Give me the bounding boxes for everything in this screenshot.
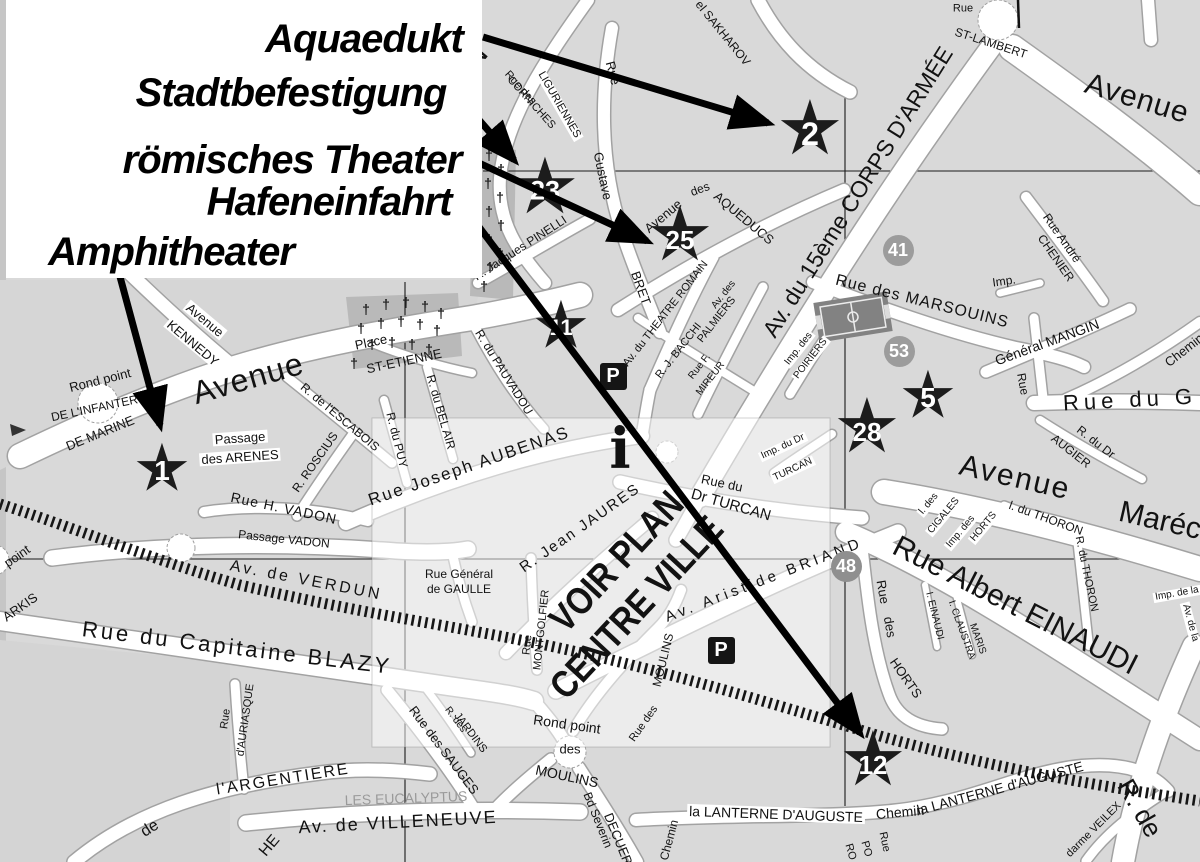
legend-item-r-misches-theater: römisches Theater: [123, 140, 462, 180]
info-icon: i: [609, 421, 630, 477]
poi-star: ★28: [829, 392, 905, 468]
star-number: 1: [154, 457, 170, 485]
legend-item-stadtbefestigung: Stadtbefestigung: [136, 73, 447, 113]
legend-item-aquaedukt: Aquaedukt: [265, 19, 463, 59]
star-number: 11: [549, 317, 572, 339]
poi-star: ★11: [528, 294, 594, 360]
poi-star: ★2: [772, 94, 848, 170]
parking-icon: P: [708, 637, 735, 664]
star-number: 28: [853, 419, 882, 445]
map-canvas: ONRue desCORNICHESLIGURIENNESRueGustaveB…: [0, 0, 1200, 862]
number-badge: 48: [831, 551, 862, 582]
star-number: 12: [859, 752, 888, 778]
star-number: 25: [666, 227, 695, 253]
number-badge: 41: [883, 235, 914, 266]
parking-icon: P: [600, 363, 627, 390]
poi-star: ★12: [835, 725, 911, 801]
legend-item-hafeneinfahrt: Hafeneinfahrt: [207, 182, 452, 222]
poi-star: ★23: [506, 150, 584, 228]
star-number: 5: [920, 384, 936, 412]
number-badge: 53: [884, 336, 915, 367]
star-number: 23: [530, 177, 560, 204]
star-number: 2: [801, 118, 819, 150]
poi-star: ★25: [642, 200, 718, 276]
legend-box: AquaeduktStadtbefestigungrömisches Theat…: [6, 0, 482, 278]
poi-star: ★1: [129, 437, 195, 503]
legend-item-amphitheater: Amphitheater: [48, 232, 294, 272]
